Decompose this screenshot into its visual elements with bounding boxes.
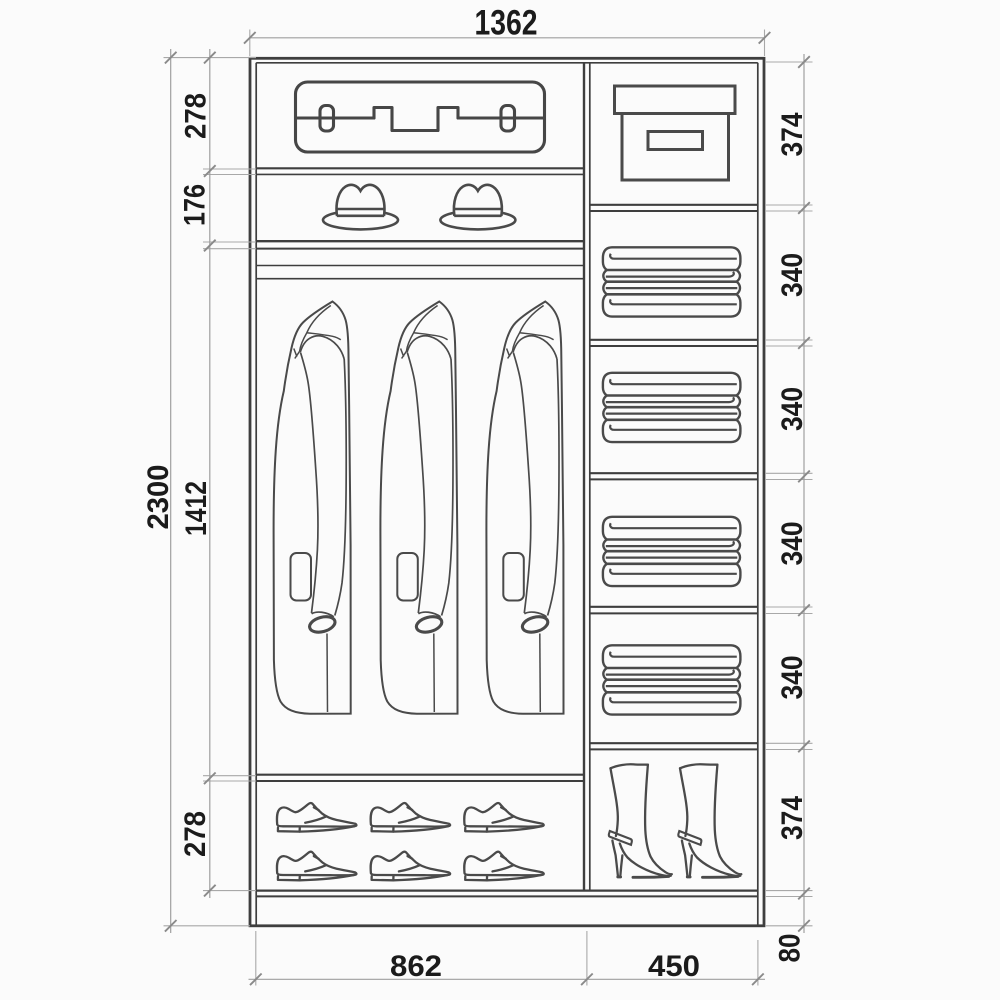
svg-text:862: 862: [390, 950, 442, 983]
svg-text:1412: 1412: [180, 481, 213, 536]
svg-text:340: 340: [776, 522, 809, 566]
svg-text:374: 374: [776, 796, 809, 840]
svg-text:340: 340: [776, 656, 809, 700]
svg-text:176: 176: [179, 184, 212, 226]
svg-text:450: 450: [648, 950, 700, 983]
svg-text:374: 374: [776, 112, 809, 156]
svg-text:2300: 2300: [142, 465, 175, 530]
svg-text:340: 340: [776, 253, 809, 297]
svg-text:278: 278: [179, 811, 212, 857]
svg-text:278: 278: [180, 93, 213, 139]
svg-text:1362: 1362: [475, 4, 538, 43]
svg-text:340: 340: [776, 387, 809, 431]
svg-text:80: 80: [774, 934, 807, 963]
